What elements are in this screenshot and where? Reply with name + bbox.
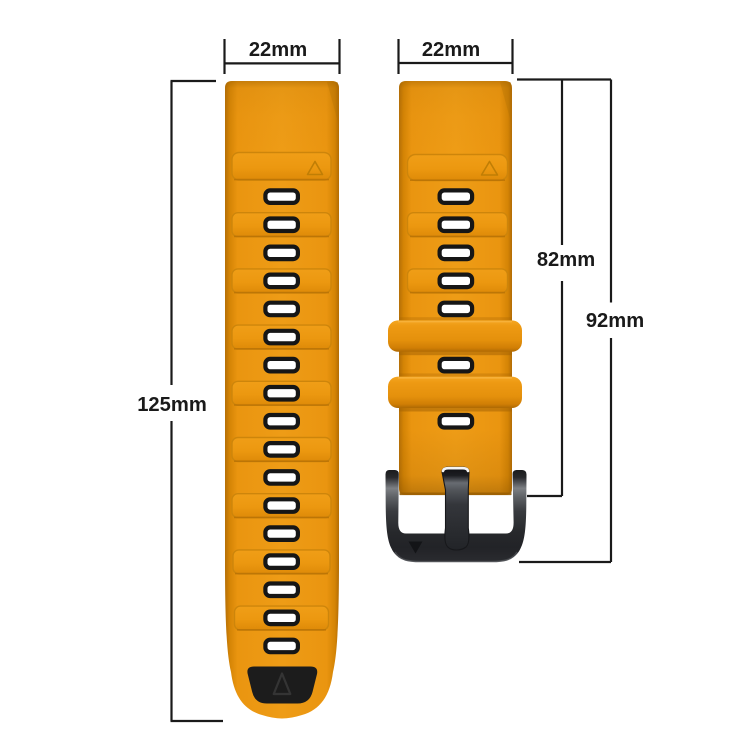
- svg-text:82mm: 82mm: [537, 249, 595, 271]
- svg-text:125mm: 125mm: [137, 394, 207, 416]
- svg-text:92mm: 92mm: [586, 310, 644, 332]
- svg-text:22mm: 22mm: [249, 39, 307, 61]
- svg-text:22mm: 22mm: [422, 39, 480, 61]
